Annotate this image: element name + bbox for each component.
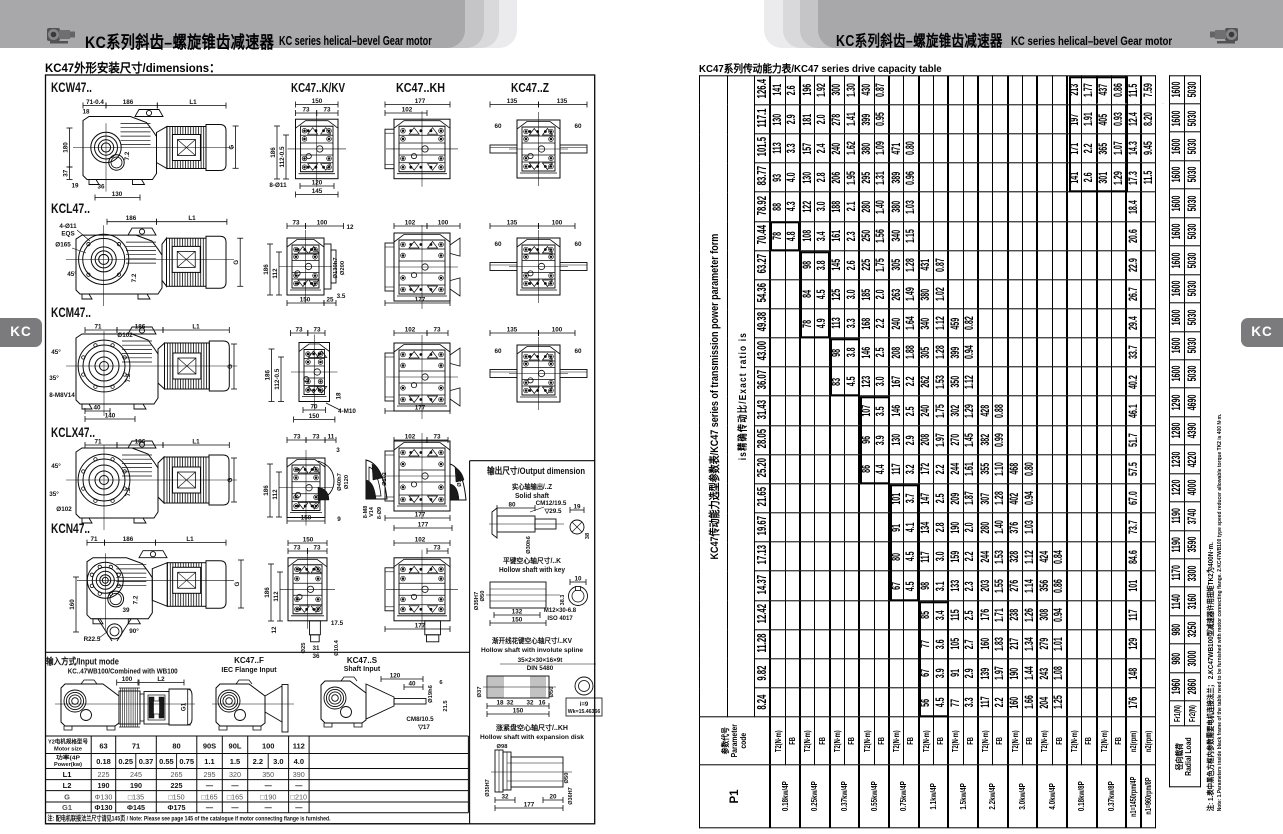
svg-text:186: 186 <box>265 370 272 381</box>
svg-text:177: 177 <box>415 297 426 304</box>
svg-text:3.5: 3.5 <box>337 293 346 300</box>
svg-text:71: 71 <box>94 324 102 331</box>
svg-text:—: — <box>231 781 239 790</box>
svg-text:8-Ø9: 8-Ø9 <box>377 507 383 519</box>
svg-text:73: 73 <box>313 327 321 334</box>
svg-text:Ø37: Ø37 <box>477 687 483 698</box>
svg-text:90°: 90° <box>129 627 139 635</box>
svg-text:60: 60 <box>574 241 582 248</box>
svg-text:73: 73 <box>292 220 300 227</box>
svg-text:38.3: 38.3 <box>560 595 566 606</box>
svg-text:Ø25: Ø25 <box>301 642 307 654</box>
svg-text:295: 295 <box>204 770 216 779</box>
svg-text:4-M10: 4-M10 <box>338 408 356 415</box>
svg-text:245: 245 <box>130 770 142 779</box>
svg-text:350: 350 <box>262 770 274 779</box>
svg-text:73: 73 <box>293 434 301 441</box>
svg-text:ISO 4017: ISO 4017 <box>547 616 573 622</box>
svg-text:KC47..K/KV: KC47..K/KV <box>291 81 346 95</box>
svg-text:G: G <box>233 260 240 265</box>
svg-text:3: 3 <box>336 447 340 454</box>
svg-text:□210: □210 <box>291 793 307 802</box>
svg-text:39: 39 <box>122 607 130 614</box>
svg-text:7.2: 7.2 <box>125 373 132 382</box>
svg-text:0.18: 0.18 <box>96 757 111 766</box>
svg-text:186: 186 <box>123 99 134 106</box>
svg-text:73: 73 <box>312 434 320 441</box>
svg-text:KC47..F: KC47..F <box>234 656 264 665</box>
svg-text:—: — <box>265 781 273 790</box>
svg-text:130: 130 <box>112 191 123 198</box>
svg-text:150: 150 <box>513 708 524 715</box>
svg-text:73: 73 <box>295 327 303 334</box>
svg-text:112: 112 <box>293 742 305 751</box>
svg-text:8-Ø11: 8-Ø11 <box>269 182 287 189</box>
svg-text:90L: 90L <box>229 742 242 751</box>
svg-text:71-0.4: 71-0.4 <box>86 99 104 106</box>
svg-text:177: 177 <box>524 802 535 809</box>
svg-text:Ø40h7: Ø40h7 <box>337 473 343 491</box>
svg-text:35°: 35° <box>49 490 59 498</box>
svg-text:186: 186 <box>135 439 146 446</box>
svg-text:150: 150 <box>312 98 323 105</box>
svg-text:190: 190 <box>130 781 142 790</box>
svg-text:R22.5: R22.5 <box>84 636 101 643</box>
svg-text:0.37: 0.37 <box>139 757 154 766</box>
svg-text:L1: L1 <box>189 99 197 106</box>
svg-text:177: 177 <box>415 405 426 412</box>
svg-text:L1: L1 <box>188 215 196 222</box>
svg-text:177: 177 <box>418 522 429 529</box>
svg-text:135: 135 <box>557 98 568 105</box>
svg-text:225: 225 <box>171 781 183 790</box>
svg-text:18: 18 <box>82 109 90 116</box>
svg-text:注: 配电机联接法兰尺寸请见145页 / Note: Ple: 注: 配电机联接法兰尺寸请见145页 / Note: Please see pa… <box>48 814 331 823</box>
svg-text:16: 16 <box>538 700 546 707</box>
svg-text:—: — <box>231 803 239 812</box>
svg-text:KCL47..: KCL47.. <box>51 201 90 216</box>
svg-text:0.55: 0.55 <box>159 757 174 766</box>
svg-text:G: G <box>227 364 234 369</box>
svg-text:KCLX47..: KCLX47.. <box>51 425 95 440</box>
svg-text:38: 38 <box>585 532 591 539</box>
svg-text:L2: L2 <box>157 676 165 683</box>
svg-text:Ø98: Ø98 <box>497 744 509 750</box>
svg-text:102: 102 <box>405 220 416 227</box>
svg-text:102: 102 <box>415 537 426 544</box>
svg-text:▽29.5: ▽29.5 <box>543 508 562 515</box>
svg-text:渐开线花键空心轴尺寸/..KV: 渐开线花键空心轴尺寸/..KV <box>492 636 572 645</box>
svg-text:63: 63 <box>99 742 107 751</box>
svg-text:32: 32 <box>501 794 509 801</box>
svg-text:KC47..S: KC47..S <box>347 656 378 665</box>
svg-text:19: 19 <box>573 504 581 511</box>
svg-text:V14: V14 <box>369 506 375 517</box>
svg-text:73: 73 <box>433 327 441 334</box>
svg-text:71: 71 <box>132 742 140 751</box>
svg-text:L1: L1 <box>192 324 200 331</box>
svg-text:80: 80 <box>508 502 516 509</box>
svg-text:102: 102 <box>405 434 416 441</box>
svg-text:32: 32 <box>506 700 514 707</box>
svg-text:4.0: 4.0 <box>294 757 304 766</box>
svg-text:100: 100 <box>552 220 563 227</box>
svg-text:135: 135 <box>507 98 518 105</box>
svg-text:Ø50: Ø50 <box>480 591 486 602</box>
svg-text:2.2: 2.2 <box>253 757 263 766</box>
svg-text:100: 100 <box>262 742 275 751</box>
svg-text:100: 100 <box>438 220 449 227</box>
svg-text:18: 18 <box>496 700 504 707</box>
svg-text:Wk=15.46366: Wk=15.46366 <box>568 709 601 715</box>
svg-text:112: 112 <box>273 591 280 602</box>
svg-text:Φ130: Φ130 <box>95 793 113 802</box>
svg-text:Ø102: Ø102 <box>117 332 133 339</box>
svg-text:□150: □150 <box>168 793 184 802</box>
svg-text:17.5: 17.5 <box>331 620 344 627</box>
svg-text:□165: □165 <box>201 793 217 802</box>
svg-text:177: 177 <box>415 512 426 519</box>
svg-text:112: 112 <box>272 489 279 500</box>
svg-text:10: 10 <box>574 576 582 583</box>
svg-text:60: 60 <box>494 241 502 248</box>
svg-text:150: 150 <box>301 515 312 522</box>
svg-text:186: 186 <box>270 147 277 158</box>
svg-text:□135: □135 <box>128 793 144 802</box>
svg-text:Hollow shaft with key: Hollow shaft with key <box>499 567 565 574</box>
svg-text:177: 177 <box>415 623 426 630</box>
svg-text:60: 60 <box>494 123 502 130</box>
svg-text:73: 73 <box>323 107 331 114</box>
svg-text:Y2电机规格型号: Y2电机规格型号 <box>48 738 88 746</box>
svg-text:45°: 45° <box>51 348 61 356</box>
svg-text:Ø50: Ø50 <box>549 687 555 698</box>
svg-text:8-M8V14: 8-M8V14 <box>49 392 75 399</box>
svg-text:145: 145 <box>312 188 323 195</box>
svg-text:实心轴输出/..Z: 实心轴输出/..Z <box>512 482 553 491</box>
svg-text:71: 71 <box>90 536 98 543</box>
svg-text:CM12/19.5: CM12/19.5 <box>536 500 567 507</box>
svg-text:45°: 45° <box>51 462 61 470</box>
svg-text:4-Ø11: 4-Ø11 <box>59 223 77 230</box>
svg-text:112-0.5: 112-0.5 <box>279 146 286 168</box>
svg-text:1.1: 1.1 <box>204 757 214 766</box>
svg-text:—: — <box>206 781 214 790</box>
svg-text:135: 135 <box>507 327 518 334</box>
svg-text:0.75: 0.75 <box>179 757 194 766</box>
svg-text:120: 120 <box>390 673 401 680</box>
svg-text:12: 12 <box>346 224 354 231</box>
svg-text:Ø200: Ø200 <box>340 261 346 275</box>
svg-text:186: 186 <box>123 536 134 543</box>
svg-text:KC..47WB100/Combined with WB10: KC..47WB100/Combined with WB100 <box>68 669 178 676</box>
svg-text:21.5: 21.5 <box>443 700 449 712</box>
svg-text:73: 73 <box>313 545 321 552</box>
svg-text:150: 150 <box>309 413 320 420</box>
svg-text:25: 25 <box>326 297 334 304</box>
svg-text:Ø35H7: Ø35H7 <box>474 592 480 610</box>
svg-text:36: 36 <box>312 653 320 660</box>
svg-text:L2: L2 <box>63 781 72 790</box>
svg-text:225: 225 <box>98 770 110 779</box>
svg-text:35°: 35° <box>49 374 59 382</box>
svg-text:i=9: i=9 <box>580 702 589 708</box>
svg-text:90S: 90S <box>203 742 216 751</box>
svg-text:73: 73 <box>293 545 301 552</box>
svg-text:100: 100 <box>317 220 328 227</box>
svg-text:12: 12 <box>271 626 278 634</box>
svg-text:100: 100 <box>122 676 133 683</box>
svg-text:102: 102 <box>402 107 413 114</box>
svg-text:160: 160 <box>69 599 76 610</box>
svg-text:Hollow shaft with expansion di: Hollow shaft with expansion disk <box>480 734 584 741</box>
svg-text:186: 186 <box>135 324 146 331</box>
svg-text:Ø120: Ø120 <box>344 475 350 489</box>
svg-text:G1: G1 <box>181 702 188 711</box>
svg-text:Solid shaft: Solid shaft <box>515 493 550 500</box>
svg-text:功率(4P: 功率(4P <box>56 754 80 762</box>
svg-text:Power(kw): Power(kw) <box>54 762 82 768</box>
svg-text:输出尺寸/Output dimension: 输出尺寸/Output dimension <box>487 465 585 476</box>
svg-text:186: 186 <box>263 264 270 275</box>
svg-text:7.2: 7.2 <box>124 151 131 160</box>
svg-text:KC47..KH: KC47..KH <box>396 81 445 95</box>
svg-text:Φ130: Φ130 <box>95 803 113 812</box>
svg-text:112: 112 <box>272 268 279 279</box>
svg-text:102: 102 <box>405 327 416 334</box>
svg-text:涨紧盘空心轴尺寸/..KH: 涨紧盘空心轴尺寸/..KH <box>496 723 568 732</box>
svg-text:186: 186 <box>263 485 270 496</box>
svg-text:31: 31 <box>312 645 320 652</box>
svg-text:Ø30h6: Ø30h6 <box>526 535 532 553</box>
svg-text:32: 32 <box>526 700 534 707</box>
svg-text:71: 71 <box>94 439 102 446</box>
svg-text:7.2: 7.2 <box>133 595 140 604</box>
svg-text:60: 60 <box>574 348 582 355</box>
svg-text:输入方式/Input mode: 输入方式/Input mode <box>46 656 119 667</box>
svg-text:Ø19h6: Ø19h6 <box>428 684 434 702</box>
svg-text:80: 80 <box>172 742 180 751</box>
svg-text:150: 150 <box>303 537 314 544</box>
svg-text:7.2: 7.2 <box>131 273 138 282</box>
svg-text:G: G <box>234 581 241 586</box>
svg-text:20: 20 <box>549 794 557 801</box>
svg-text:265: 265 <box>171 770 183 779</box>
svg-text:135: 135 <box>507 220 518 227</box>
svg-text:70: 70 <box>310 404 318 411</box>
svg-text:177: 177 <box>415 98 426 105</box>
svg-text:Ø50: Ø50 <box>564 773 570 784</box>
svg-text:18: 18 <box>336 392 343 400</box>
svg-text:73: 73 <box>433 434 441 441</box>
svg-text:150: 150 <box>512 617 523 624</box>
svg-text:▽17: ▽17 <box>417 724 430 731</box>
svg-text:73: 73 <box>433 545 441 552</box>
svg-text:40: 40 <box>93 405 101 412</box>
svg-text:186: 186 <box>264 587 271 598</box>
svg-text:Motor size: Motor size <box>54 747 83 753</box>
svg-text:—: — <box>295 803 303 812</box>
svg-text:G: G <box>227 477 234 482</box>
svg-text:KCW47..: KCW47.. <box>51 80 92 95</box>
svg-text:Φ175: Φ175 <box>168 803 186 812</box>
svg-text:140: 140 <box>105 413 116 420</box>
svg-text:□190: □190 <box>260 793 276 802</box>
svg-text:Ø165: Ø165 <box>55 242 71 249</box>
svg-text:Ø102: Ø102 <box>457 473 463 486</box>
svg-text:IEC Flange Input: IEC Flange Input <box>221 667 277 674</box>
svg-text:Hollow shaft with involute spl: Hollow shaft with involute spline <box>481 647 583 654</box>
svg-text:1.5: 1.5 <box>230 757 240 766</box>
svg-text:35×2×30×16×9t: 35×2×30×16×9t <box>518 657 564 664</box>
svg-text:EQS: EQS <box>61 231 74 238</box>
svg-text:9: 9 <box>337 516 341 523</box>
svg-text:11: 11 <box>328 434 335 441</box>
svg-text:0.25: 0.25 <box>118 757 133 766</box>
svg-text:Ø102: Ø102 <box>56 506 72 513</box>
svg-text:—: — <box>265 803 273 812</box>
svg-text:390: 390 <box>293 770 305 779</box>
svg-text:36: 36 <box>97 183 105 190</box>
svg-text:60: 60 <box>574 123 582 130</box>
svg-text:KC47..Z: KC47..Z <box>511 81 549 95</box>
svg-text:Ø35H7: Ø35H7 <box>485 779 491 796</box>
svg-text:19: 19 <box>71 183 79 190</box>
svg-text:320: 320 <box>229 770 241 779</box>
svg-text:—: — <box>295 781 303 790</box>
svg-text:112-0.5: 112-0.5 <box>274 368 281 390</box>
svg-text:190: 190 <box>98 781 110 790</box>
svg-text:Shaft Input: Shaft Input <box>344 666 381 673</box>
svg-text:40: 40 <box>408 681 416 688</box>
svg-text:M12×30-6.8: M12×30-6.8 <box>544 608 577 614</box>
svg-text:平键空心轴尺寸/..K: 平键空心轴尺寸/..K <box>503 556 561 565</box>
svg-text:Ø130h7: Ø130h7 <box>333 258 339 279</box>
svg-text:45°: 45° <box>67 270 77 278</box>
svg-text:3.0: 3.0 <box>273 757 283 766</box>
svg-text:G1: G1 <box>62 803 72 812</box>
svg-text:150: 150 <box>300 297 311 304</box>
svg-text:G: G <box>64 793 70 802</box>
svg-text:KCM47..: KCM47.. <box>51 305 91 320</box>
svg-text:Ø36H7: Ø36H7 <box>568 787 574 804</box>
svg-text:Ø10.4: Ø10.4 <box>334 639 340 656</box>
svg-text:7.2: 7.2 <box>125 487 132 496</box>
svg-text:60: 60 <box>494 348 502 355</box>
svg-text:186: 186 <box>126 215 137 222</box>
svg-text:37: 37 <box>63 169 70 177</box>
svg-text:L1: L1 <box>186 536 194 543</box>
svg-text:132: 132 <box>512 609 523 616</box>
svg-text:120: 120 <box>312 180 323 187</box>
svg-text:73: 73 <box>302 107 310 114</box>
svg-text:—: — <box>206 803 214 812</box>
svg-text:L1: L1 <box>63 770 72 779</box>
svg-text:CM8/10.5: CM8/10.5 <box>406 716 434 723</box>
svg-text:G: G <box>229 145 236 150</box>
svg-text:100: 100 <box>552 327 563 334</box>
svg-text:DIN 5480: DIN 5480 <box>527 665 554 672</box>
svg-text:□165: □165 <box>227 793 243 802</box>
svg-text:L1: L1 <box>192 439 200 446</box>
svg-text:6: 6 <box>439 680 443 686</box>
svg-text:180: 180 <box>63 142 70 153</box>
svg-text:Φ145: Φ145 <box>127 803 145 812</box>
